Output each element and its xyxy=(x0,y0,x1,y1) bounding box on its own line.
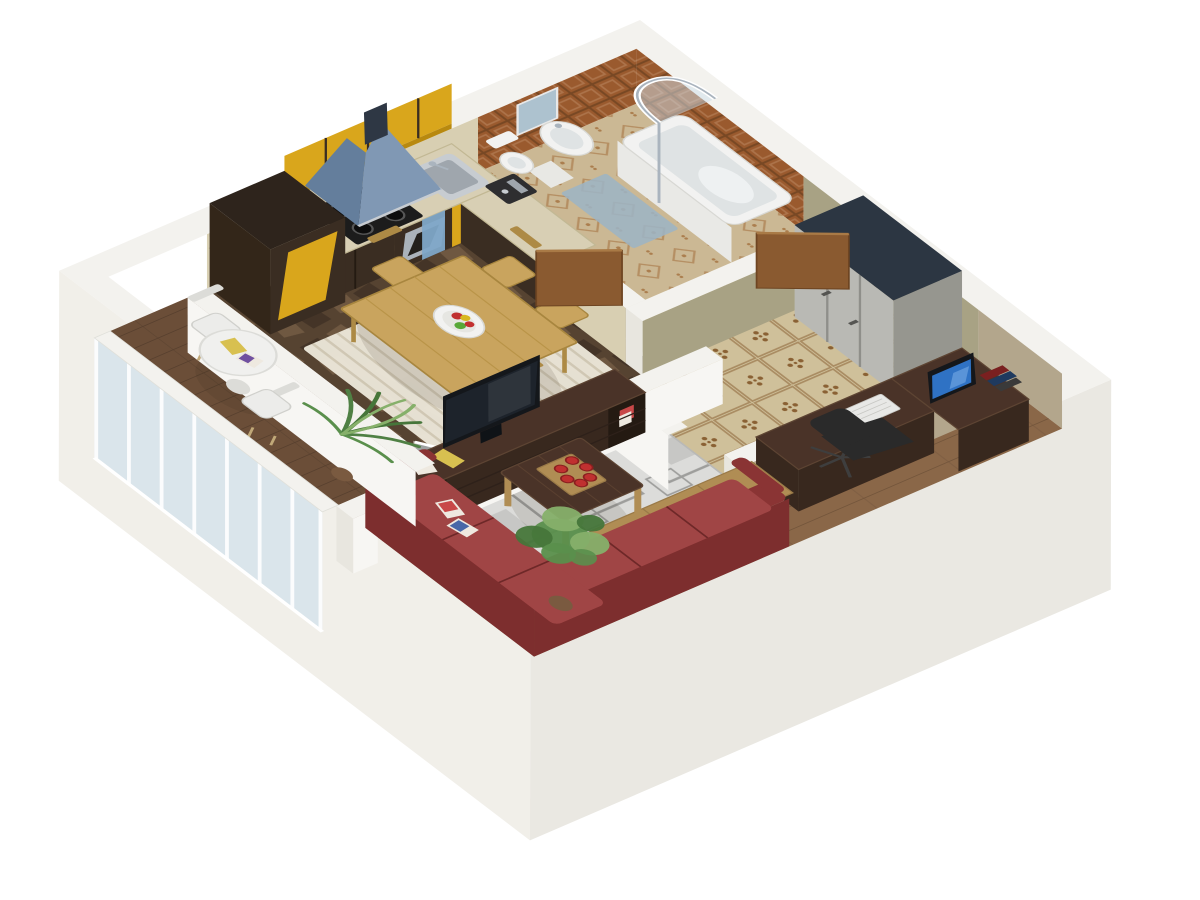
apartment-3d-floorplan xyxy=(0,0,1200,900)
apartment-render-stage xyxy=(0,0,1200,900)
apartment-iso-group xyxy=(0,3,1200,840)
